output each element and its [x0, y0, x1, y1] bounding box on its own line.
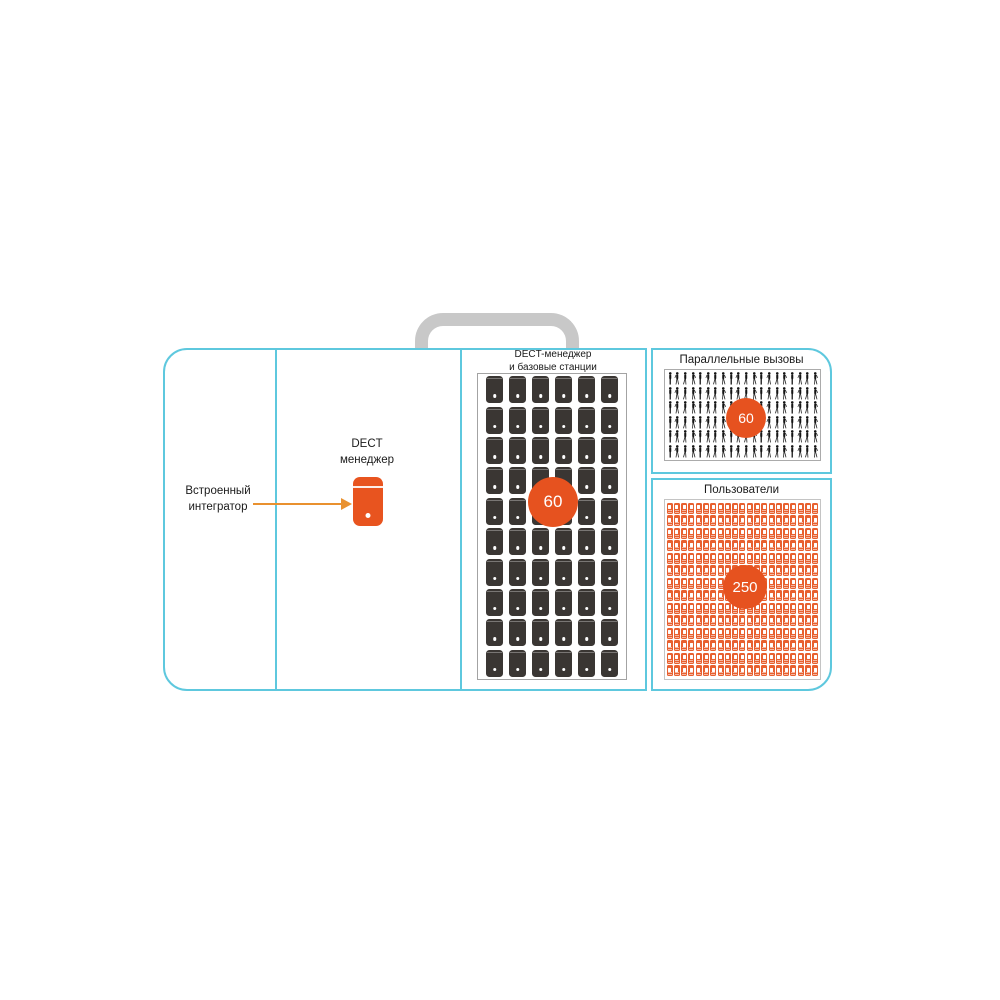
parallel-calls-title: Параллельные вызовы	[653, 354, 830, 366]
base-station-icon	[532, 559, 549, 586]
base-station-icon	[532, 376, 549, 403]
person-icon	[766, 445, 773, 458]
person-icon	[697, 387, 704, 400]
handset-icon	[798, 615, 804, 626]
handset-icon	[798, 628, 804, 639]
handset-icon	[703, 540, 709, 551]
integrator-label-line1: Встроенный	[168, 484, 268, 500]
handset-icon	[667, 603, 673, 614]
person-icon	[735, 372, 742, 385]
handset-icon	[710, 540, 716, 551]
handset-icon	[769, 540, 775, 551]
base-station-icon	[509, 589, 526, 616]
base-station-icon	[509, 407, 526, 434]
handset-icon	[725, 553, 731, 564]
person-icon	[797, 416, 804, 429]
person-icon	[812, 416, 819, 429]
handset-icon	[696, 540, 702, 551]
integrator-label: Встроенный интегратор	[168, 484, 268, 515]
handset-icon	[681, 628, 687, 639]
base-station-icon	[486, 467, 503, 494]
handset-icon	[747, 503, 753, 514]
person-icon	[720, 387, 727, 400]
handset-icon	[790, 528, 796, 539]
handset-icon	[739, 628, 745, 639]
base-stations-title-line1: DECT-менеджер	[462, 349, 644, 362]
person-icon	[697, 401, 704, 414]
handset-icon	[732, 528, 738, 539]
handset-icon	[710, 553, 716, 564]
users-panel: Пользователи 250	[651, 478, 832, 691]
base-station-icon	[578, 559, 595, 586]
handset-icon	[812, 565, 818, 576]
handset-icon	[776, 615, 782, 626]
base-station-icon	[578, 528, 595, 555]
person-icon	[682, 372, 689, 385]
person-icon	[812, 372, 819, 385]
base-station-icon	[578, 467, 595, 494]
person-icon	[712, 416, 719, 429]
handset-icon	[667, 503, 673, 514]
base-station-icon	[486, 528, 503, 555]
handset-icon	[754, 515, 760, 526]
handset-icon	[805, 628, 811, 639]
person-icon	[712, 430, 719, 443]
person-icon	[766, 401, 773, 414]
person-icon	[766, 430, 773, 443]
person-icon	[804, 430, 811, 443]
base-station-icon	[509, 467, 526, 494]
handset-icon	[805, 665, 811, 676]
handset-icon	[674, 578, 680, 589]
person-icon	[766, 372, 773, 385]
handset-icon	[718, 565, 724, 576]
handset-icon	[776, 565, 782, 576]
handset-icon	[725, 628, 731, 639]
handset-icon	[747, 553, 753, 564]
handset-icon	[718, 503, 724, 514]
handset-icon	[681, 528, 687, 539]
handset-icon	[681, 615, 687, 626]
base-station-icon	[578, 589, 595, 616]
person-icon	[690, 372, 697, 385]
base-station-icon	[578, 407, 595, 434]
handset-icon	[681, 590, 687, 601]
person-icon	[766, 387, 773, 400]
base-station-icon	[509, 650, 526, 677]
handset-icon	[725, 665, 731, 676]
handset-icon	[725, 603, 731, 614]
handset-icon	[754, 653, 760, 664]
base-stations-count-badge: 60	[528, 477, 578, 527]
handset-icon	[798, 540, 804, 551]
base-station-icon	[555, 559, 572, 586]
handset-icon	[739, 615, 745, 626]
handset-icon	[812, 553, 818, 564]
base-station-icon	[532, 407, 549, 434]
handset-icon	[688, 603, 694, 614]
person-icon	[774, 416, 781, 429]
handset-icon	[710, 628, 716, 639]
person-icon	[789, 445, 796, 458]
handset-icon	[783, 653, 789, 664]
base-station-icon	[601, 437, 618, 464]
handset-icon	[725, 528, 731, 539]
parallel-calls-panel: Параллельные вызовы 60	[651, 348, 832, 474]
person-icon	[705, 445, 712, 458]
handset-icon	[769, 503, 775, 514]
person-icon	[682, 387, 689, 400]
person-icon	[781, 387, 788, 400]
handset-icon	[769, 528, 775, 539]
handset-icon	[783, 540, 789, 551]
person-icon	[789, 416, 796, 429]
handset-icon	[754, 540, 760, 551]
base-station-icon	[509, 437, 526, 464]
handset-icon	[688, 515, 694, 526]
person-icon	[743, 372, 750, 385]
handset-icon	[769, 603, 775, 614]
handset-icon	[761, 603, 767, 614]
base-station-icon	[555, 376, 572, 403]
handset-icon	[761, 653, 767, 664]
handset-icon	[688, 503, 694, 514]
person-icon	[804, 372, 811, 385]
handset-icon	[805, 615, 811, 626]
handset-icon	[703, 515, 709, 526]
handset-icon	[732, 540, 738, 551]
person-icon	[789, 387, 796, 400]
handset-icon	[674, 553, 680, 564]
person-icon	[712, 401, 719, 414]
person-icon	[690, 430, 697, 443]
base-station-icon	[509, 376, 526, 403]
person-icon	[667, 445, 674, 458]
handset-icon	[674, 615, 680, 626]
handset-icon	[667, 653, 673, 664]
case-divider	[275, 350, 277, 689]
person-icon	[674, 387, 681, 400]
handset-icon	[754, 503, 760, 514]
handset-icon	[674, 665, 680, 676]
person-icon	[705, 416, 712, 429]
person-icon	[674, 401, 681, 414]
person-icon	[697, 416, 704, 429]
right-arrow-icon	[253, 503, 342, 505]
handset-icon	[710, 653, 716, 664]
person-icon	[751, 445, 758, 458]
handset-icon	[805, 528, 811, 539]
person-icon	[690, 416, 697, 429]
handset-icon	[783, 578, 789, 589]
handset-icon	[696, 565, 702, 576]
handset-icon	[696, 578, 702, 589]
person-icon	[781, 372, 788, 385]
base-stations-title: DECT-менеджер и базовые станции	[462, 349, 644, 374]
handset-icon	[812, 603, 818, 614]
handset-icon	[710, 603, 716, 614]
handset-icon	[696, 665, 702, 676]
handset-icon	[790, 553, 796, 564]
person-icon	[720, 430, 727, 443]
handset-icon	[776, 628, 782, 639]
person-icon	[774, 430, 781, 443]
handset-icon	[812, 578, 818, 589]
handset-icon	[703, 578, 709, 589]
handset-icon	[739, 540, 745, 551]
handset-icon	[798, 515, 804, 526]
handset-icon	[703, 628, 709, 639]
handset-icon	[783, 615, 789, 626]
parallel-calls-count-badge: 60	[726, 398, 766, 438]
base-station-icon	[532, 650, 549, 677]
handset-icon	[805, 640, 811, 651]
handset-icon	[718, 653, 724, 664]
handset-icon	[674, 603, 680, 614]
base-station-icon	[486, 407, 503, 434]
handset-icon	[710, 665, 716, 676]
person-icon	[712, 372, 719, 385]
base-station-icon	[509, 619, 526, 646]
right-arrow-head-icon	[341, 498, 352, 510]
person-icon	[728, 387, 735, 400]
handset-icon	[790, 640, 796, 651]
person-icon	[667, 416, 674, 429]
person-icon	[804, 401, 811, 414]
handset-icon	[790, 665, 796, 676]
handset-icon	[798, 578, 804, 589]
person-icon	[690, 387, 697, 400]
handset-icon	[667, 515, 673, 526]
person-icon	[720, 372, 727, 385]
handset-icon	[747, 540, 753, 551]
handset-icon	[790, 565, 796, 576]
handset-icon	[718, 628, 724, 639]
person-icon	[712, 387, 719, 400]
handset-icon	[790, 503, 796, 514]
person-icon	[728, 372, 735, 385]
handset-icon	[710, 503, 716, 514]
person-icon	[812, 445, 819, 458]
person-icon	[682, 430, 689, 443]
handset-icon	[747, 628, 753, 639]
base-station-icon	[601, 650, 618, 677]
handset-icon	[805, 503, 811, 514]
handset-icon	[790, 515, 796, 526]
base-station-icon	[486, 650, 503, 677]
handset-icon	[718, 603, 724, 614]
handset-icon	[783, 528, 789, 539]
handset-icon	[798, 503, 804, 514]
handset-icon	[718, 540, 724, 551]
handset-icon	[812, 640, 818, 651]
handset-icon	[769, 590, 775, 601]
handset-icon	[739, 553, 745, 564]
person-icon	[781, 445, 788, 458]
base-station-icon	[601, 559, 618, 586]
handset-icon	[805, 553, 811, 564]
person-icon	[674, 372, 681, 385]
handset-icon	[674, 503, 680, 514]
person-icon	[781, 416, 788, 429]
handset-icon	[696, 653, 702, 664]
handset-icon	[696, 553, 702, 564]
handset-icon	[783, 628, 789, 639]
handset-icon	[681, 540, 687, 551]
integrator-label-line2: интегратор	[168, 500, 268, 516]
handset-icon	[688, 640, 694, 651]
handset-icon	[667, 628, 673, 639]
handset-icon	[732, 628, 738, 639]
handset-icon	[812, 665, 818, 676]
handset-icon	[761, 503, 767, 514]
handset-icon	[696, 615, 702, 626]
dect-system-diagram: Встроенный интегратор DECT менеджер DECT…	[0, 0, 1000, 1000]
handset-icon	[739, 528, 745, 539]
handset-icon	[761, 528, 767, 539]
person-icon	[712, 445, 719, 458]
person-icon	[705, 372, 712, 385]
base-station-icon	[555, 589, 572, 616]
dect-manager-label-line1: DECT	[317, 437, 417, 453]
handset-icon	[732, 640, 738, 651]
person-icon	[705, 387, 712, 400]
person-icon	[682, 445, 689, 458]
base-station-icon	[578, 376, 595, 403]
person-icon	[682, 416, 689, 429]
base-station-icon	[601, 528, 618, 555]
handset-icon	[688, 590, 694, 601]
handset-icon	[667, 640, 673, 651]
handset-icon	[776, 528, 782, 539]
handset-icon	[761, 540, 767, 551]
person-icon	[758, 445, 765, 458]
person-icon	[774, 445, 781, 458]
base-station-icon	[509, 559, 526, 586]
person-icon	[812, 387, 819, 400]
handset-icon	[769, 665, 775, 676]
handset-icon	[783, 590, 789, 601]
handset-icon	[688, 653, 694, 664]
handset-icon	[747, 640, 753, 651]
person-icon	[812, 430, 819, 443]
base-station-icon	[555, 619, 572, 646]
handset-icon	[688, 565, 694, 576]
handset-icon	[783, 565, 789, 576]
handset-icon	[805, 540, 811, 551]
handset-icon	[790, 540, 796, 551]
dect-manager-label-line2: менеджер	[317, 453, 417, 469]
person-icon	[751, 372, 758, 385]
handset-icon	[798, 565, 804, 576]
person-icon	[804, 387, 811, 400]
handset-icon	[754, 615, 760, 626]
handset-icon	[725, 640, 731, 651]
handset-icon	[710, 615, 716, 626]
handset-icon	[769, 653, 775, 664]
handset-icon	[739, 515, 745, 526]
person-icon	[690, 401, 697, 414]
dect-manager-device-icon	[353, 477, 383, 526]
handset-icon	[732, 553, 738, 564]
handset-icon	[710, 578, 716, 589]
handset-icon	[739, 640, 745, 651]
handset-icon	[674, 565, 680, 576]
handset-icon	[769, 640, 775, 651]
person-icon	[797, 372, 804, 385]
base-station-icon	[486, 589, 503, 616]
handset-icon	[681, 603, 687, 614]
handset-icon	[688, 553, 694, 564]
handset-icon	[725, 615, 731, 626]
base-station-icon	[601, 619, 618, 646]
handset-icon	[798, 603, 804, 614]
handset-icon	[667, 553, 673, 564]
person-icon	[774, 401, 781, 414]
handset-icon	[710, 528, 716, 539]
base-station-icon	[555, 437, 572, 464]
handset-icon	[812, 515, 818, 526]
handset-icon	[696, 628, 702, 639]
person-icon	[774, 372, 781, 385]
handset-icon	[798, 528, 804, 539]
handset-icon	[681, 515, 687, 526]
handset-icon	[798, 653, 804, 664]
base-station-icon	[601, 376, 618, 403]
handset-icon	[732, 665, 738, 676]
handset-icon	[761, 615, 767, 626]
handset-icon	[769, 553, 775, 564]
base-station-icon	[509, 498, 526, 525]
handset-icon	[674, 590, 680, 601]
handset-icon	[747, 515, 753, 526]
handset-icon	[696, 528, 702, 539]
handset-icon	[718, 515, 724, 526]
base-station-icon	[532, 589, 549, 616]
handset-icon	[674, 653, 680, 664]
handset-icon	[747, 528, 753, 539]
handset-icon	[776, 590, 782, 601]
handset-icon	[703, 590, 709, 601]
handset-icon	[696, 603, 702, 614]
handset-icon	[783, 603, 789, 614]
handset-icon	[732, 515, 738, 526]
handset-icon	[710, 640, 716, 651]
person-icon	[797, 430, 804, 443]
base-station-icon	[601, 589, 618, 616]
handset-icon	[688, 628, 694, 639]
handset-icon	[696, 590, 702, 601]
person-icon	[667, 387, 674, 400]
users-count-badge: 250	[723, 565, 767, 609]
person-icon	[804, 445, 811, 458]
person-icon	[766, 416, 773, 429]
handset-icon	[667, 565, 673, 576]
handset-icon	[776, 640, 782, 651]
handset-icon	[674, 515, 680, 526]
person-icon	[797, 445, 804, 458]
person-icon	[781, 430, 788, 443]
handset-icon	[798, 665, 804, 676]
handset-icon	[710, 590, 716, 601]
person-icon	[774, 387, 781, 400]
base-station-icon	[509, 528, 526, 555]
handset-icon	[783, 515, 789, 526]
handset-icon	[812, 540, 818, 551]
handset-icon	[769, 515, 775, 526]
base-station-icon	[486, 498, 503, 525]
person-icon	[697, 445, 704, 458]
